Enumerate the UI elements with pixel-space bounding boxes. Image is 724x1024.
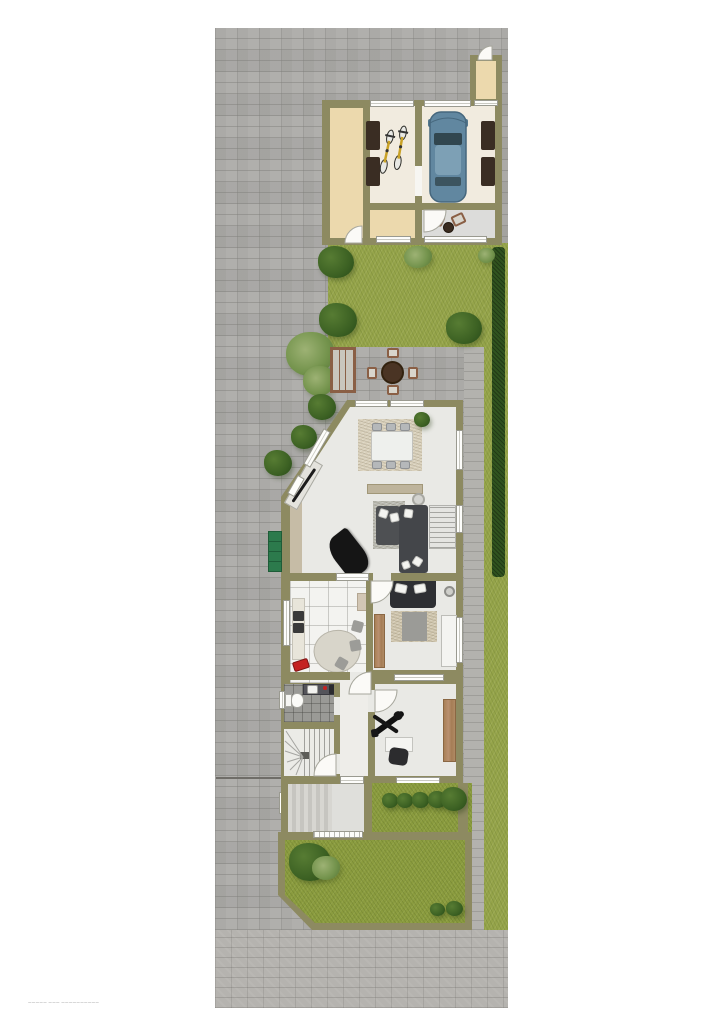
diagonal-window (304, 429, 330, 467)
stair-fan-treads (285, 731, 303, 775)
car (428, 112, 468, 202)
footer-note: ————— ——— —————————— (28, 1001, 99, 1005)
plan-detail-overlay (0, 0, 724, 1024)
bicycle-icon (377, 125, 409, 174)
diagonal-window (288, 476, 304, 497)
exercise-machine (369, 711, 405, 738)
floor-plan-site: ————— ——— —————————— (0, 0, 724, 1024)
